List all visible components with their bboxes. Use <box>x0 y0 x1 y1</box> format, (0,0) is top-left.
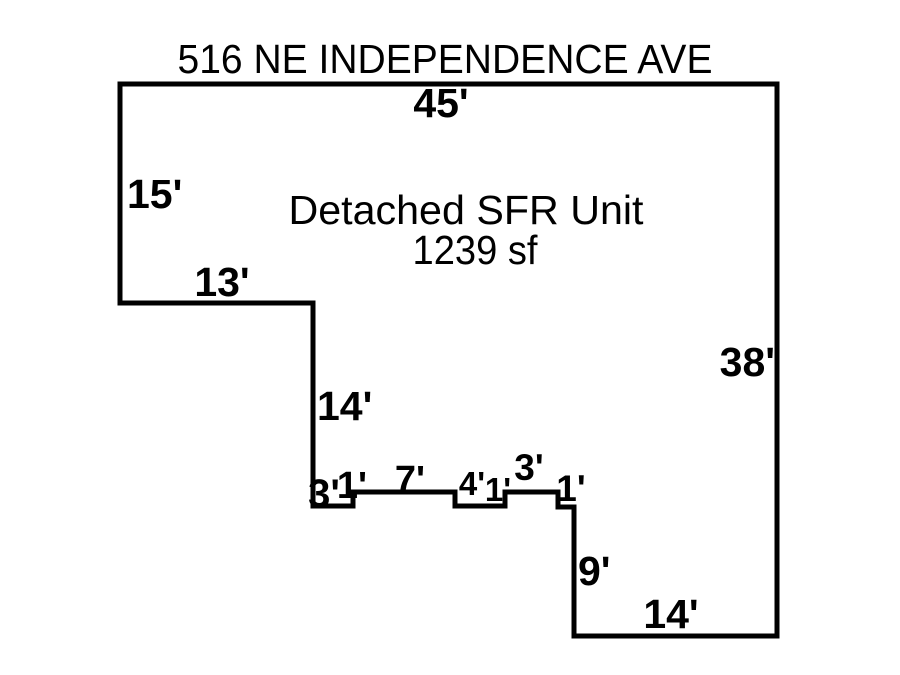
dimension-notch-7: 1' <box>556 468 585 509</box>
dimension-notch-6: 3' <box>514 447 543 488</box>
dimension-notch-5: 1' <box>485 471 511 508</box>
dimension-notch-1: 3' <box>308 472 340 516</box>
dimension-left-upper-wall: 15' <box>127 171 182 217</box>
dimension-bottom-wall: 14' <box>643 591 698 637</box>
sketch-canvas: 516 NE INDEPENDENCE AVE Detached SFR Uni… <box>0 0 900 675</box>
address-title: 516 NE INDEPENDENCE AVE <box>178 36 713 82</box>
dimension-notch-3: 7' <box>395 459 425 501</box>
dimension-bottom-right-vertical-wall: 9' <box>578 548 611 594</box>
dimension-top-wall: 45' <box>413 80 468 126</box>
dimension-right-wall: 38' <box>720 339 775 385</box>
dimension-mid-vertical-wall: 14' <box>317 383 372 429</box>
dimension-notch-4: 4' <box>459 465 485 502</box>
dimension-notch-2: 1' <box>337 465 367 507</box>
unit-area-label: 1239 sf <box>413 227 539 273</box>
floorplan-sketch: 516 NE INDEPENDENCE AVE Detached SFR Uni… <box>0 0 900 675</box>
dimension-left-step-wall: 13' <box>194 259 249 305</box>
building-outline <box>120 84 777 636</box>
